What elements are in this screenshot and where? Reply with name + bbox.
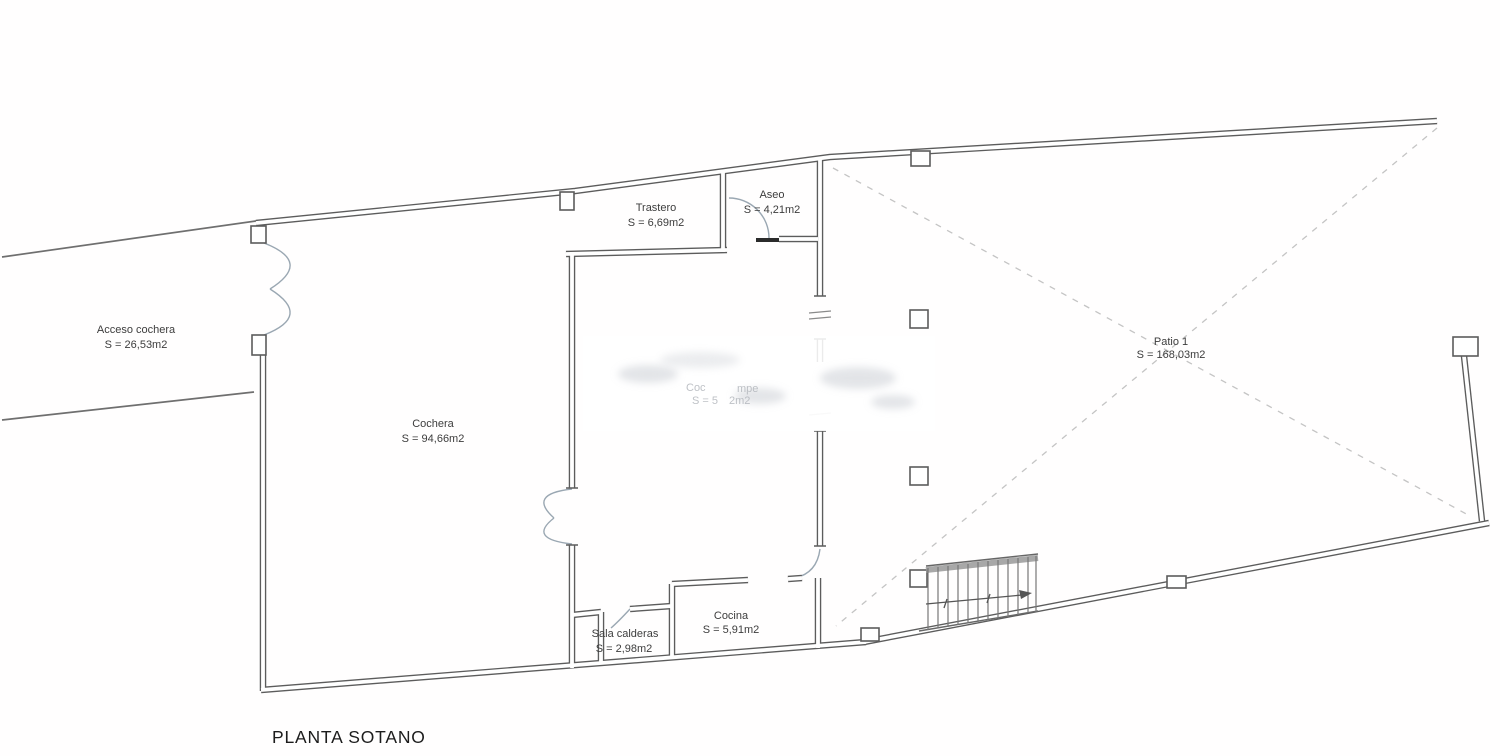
label-patio-name: Patio 1 [1154,336,1188,348]
label-cochera-area: S = 94,66m2 [402,433,465,445]
label-cocina-area: S = 5,91m2 [703,624,760,636]
label-central-area-fragment-1: S = 5 [692,395,718,407]
label-sala-calderas-area: S = 2,98m2 [596,643,653,655]
bottom-wall-notch-2 [1167,576,1186,588]
garage-door-jamb-bottom [252,335,266,355]
label-central-name-fragment-2: mpe [737,383,758,395]
label-acceso-name: Acceso cochera [97,324,176,336]
patio-pillar-1 [910,310,928,328]
access-ramp-walls [2,221,256,420]
patio-pillar-2 [910,467,928,485]
trastero-pillar [560,192,574,210]
label-aseo-name: Aseo [759,189,784,201]
stair-newel [910,570,927,587]
label-aseo-area: S = 4,21m2 [744,204,801,216]
top-wall-pillar [911,151,930,166]
label-patio-area: S = 168,03m2 [1137,349,1206,361]
right-wall-cap [1453,337,1478,356]
erased-scan-patch [583,336,935,431]
floor-plan-drawing: Acceso cochera S = 26,53m2 Cochera S = 9… [0,0,1500,756]
label-sala-calderas-name: Sala calderas [592,628,659,640]
label-trastero-name: Trastero [636,202,677,214]
page-title: PLANTA SOTANO [272,727,426,747]
label-acceso-area: S = 26,53m2 [105,339,168,351]
garage-door-jamb-top [251,226,266,243]
label-trastero-area: S = 6,69m2 [628,217,685,229]
stair-direction-arrow [1019,590,1032,599]
bottom-wall-notch-1 [861,628,879,641]
label-central-name-fragment-1: Coc [686,382,706,394]
label-cocina-name: Cocina [714,610,749,622]
label-cochera-name: Cochera [412,418,454,430]
label-central-area-fragment-2: 2m2 [729,395,750,407]
floor-plan-page: Acceso cochera S = 26,53m2 Cochera S = 9… [0,0,1500,756]
